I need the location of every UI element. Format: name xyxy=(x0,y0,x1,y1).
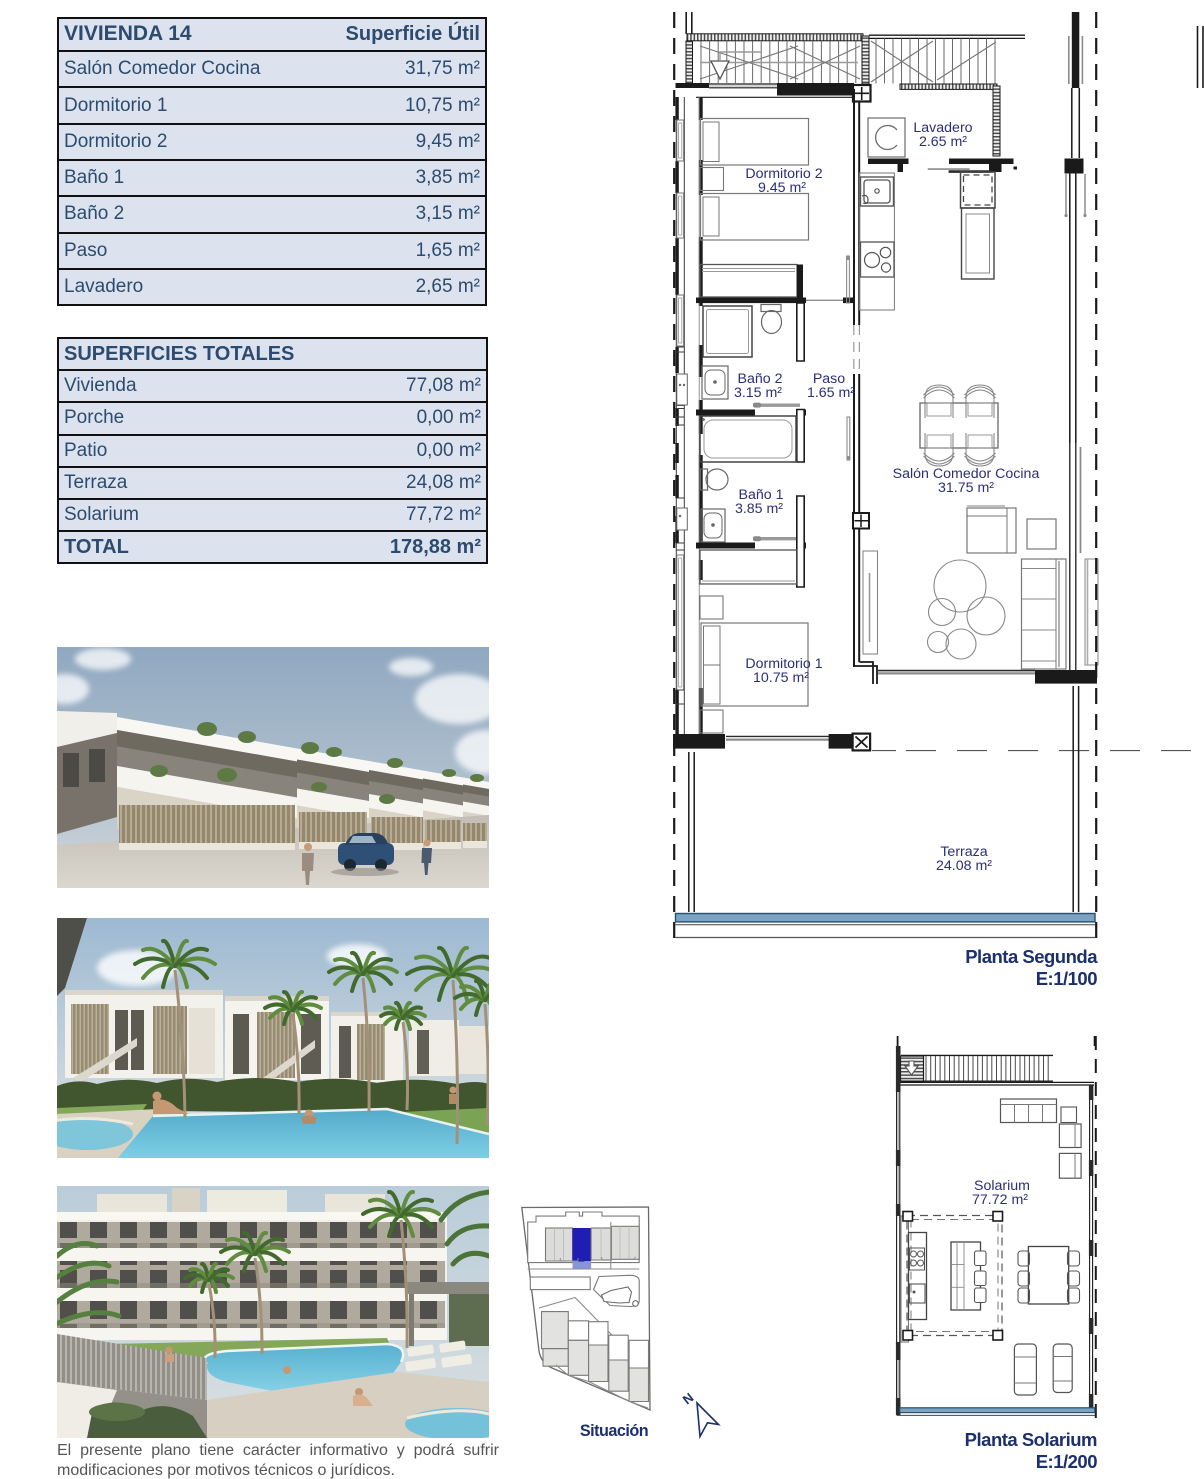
svg-text:Planta Segunda: Planta Segunda xyxy=(965,946,1098,967)
svg-text:24.08 m²: 24.08 m² xyxy=(936,858,992,874)
svg-text:Planta Solarium: Planta Solarium xyxy=(965,1429,1097,1450)
svg-text:77.72 m²: 77.72 m² xyxy=(972,1192,1028,1208)
svg-text:9.45 m²: 9.45 m² xyxy=(758,180,806,196)
svg-text:3.15 m²: 3.15 m² xyxy=(734,385,782,401)
svg-text:1.65 m²: 1.65 m² xyxy=(807,385,855,401)
svg-text:2.65 m²: 2.65 m² xyxy=(919,134,967,150)
svg-text:E:1/100: E:1/100 xyxy=(1036,968,1098,989)
svg-text:E:1/200: E:1/200 xyxy=(1036,1451,1098,1472)
svg-text:31.75 m²: 31.75 m² xyxy=(938,480,994,496)
svg-text:N: N xyxy=(680,1390,697,1408)
svg-text:3.85 m²: 3.85 m² xyxy=(735,501,783,517)
svg-text:Situación: Situación xyxy=(580,1422,648,1440)
svg-text:10.75 m²: 10.75 m² xyxy=(753,670,809,686)
